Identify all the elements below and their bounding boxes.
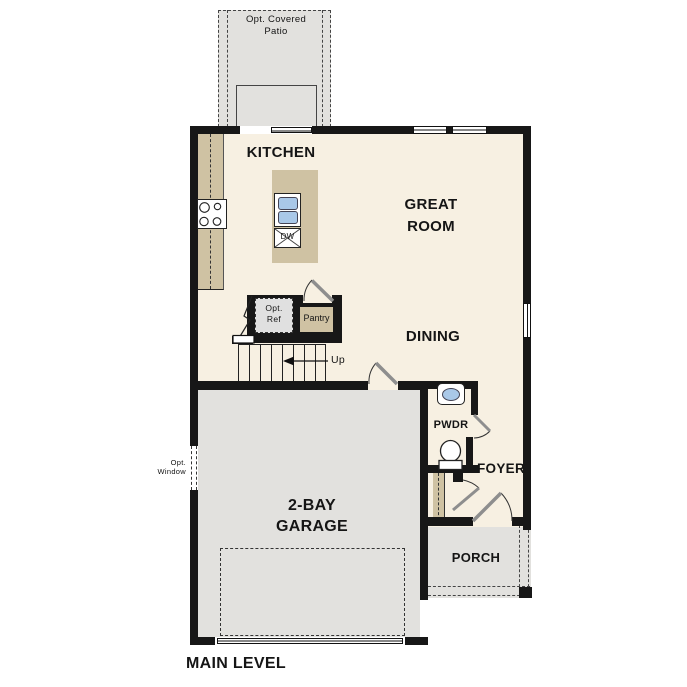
- garage-label: 2-BAY GARAGE: [252, 495, 372, 537]
- optional-refrigerator-label: Opt. Ref: [255, 303, 293, 324]
- garage-door-clearance: [220, 548, 405, 636]
- pantry-label: Pantry: [300, 313, 333, 324]
- powder-label: PWDR: [429, 419, 473, 433]
- garage-entry-opening: [368, 381, 398, 390]
- patio-label: Opt. Covered Patio: [216, 14, 336, 38]
- optional-window-dash-1: [191, 446, 192, 490]
- wall-closet-door-stub: [453, 473, 463, 482]
- powder-vanity: [437, 383, 465, 405]
- great-room-window-2: [452, 126, 487, 134]
- sink-basin-top: [278, 197, 298, 210]
- front-door-opening: [473, 517, 512, 526]
- patio-sliding-door: [271, 127, 312, 133]
- wall-powder-right-upper: [471, 381, 478, 415]
- foyer-label: FOYER: [470, 461, 532, 478]
- wall-garage-right: [420, 381, 428, 600]
- porch-post: [519, 587, 532, 598]
- porch-edge-inner: [428, 586, 530, 587]
- optional-window-label: Opt. Window: [148, 458, 186, 477]
- staircase: [238, 344, 326, 381]
- main-level-label: MAIN LEVEL: [186, 654, 366, 674]
- dining-window: [523, 303, 531, 338]
- optional-window-dash-2: [196, 446, 197, 490]
- stairs-up-label: Up: [331, 354, 355, 367]
- wall-foyer-bottom-right: [512, 517, 531, 526]
- porch-edge-outer: [428, 595, 530, 596]
- cooktop: [197, 199, 227, 229]
- garage-door-panel: [217, 638, 403, 644]
- pantry-door-opening: [303, 295, 332, 303]
- vanity-sink-bowl: [442, 388, 460, 401]
- kitchen-label: KITCHEN: [231, 144, 331, 163]
- floor-plan: Opt. Covered Patio KITCHEN GREAT ROOM DI…: [0, 0, 687, 687]
- kitchen-sink: [274, 193, 301, 227]
- closet-rod: [438, 473, 439, 520]
- sink-basin-bottom: [278, 211, 298, 224]
- great-room-label: GREAT ROOM: [381, 194, 481, 238]
- great-room-window-1: [413, 126, 447, 134]
- porch-roofline-outer: [528, 525, 529, 592]
- wall-foyer-bottom-left: [428, 517, 473, 526]
- dishwasher-label: DW: [274, 232, 301, 242]
- stair-door-stub: [232, 336, 253, 344]
- coat-closet: [433, 473, 445, 520]
- dining-label: DINING: [383, 328, 483, 347]
- porch-rooline-inner: [519, 525, 520, 592]
- porch-label: PORCH: [440, 550, 512, 566]
- patio-slab: [236, 85, 317, 127]
